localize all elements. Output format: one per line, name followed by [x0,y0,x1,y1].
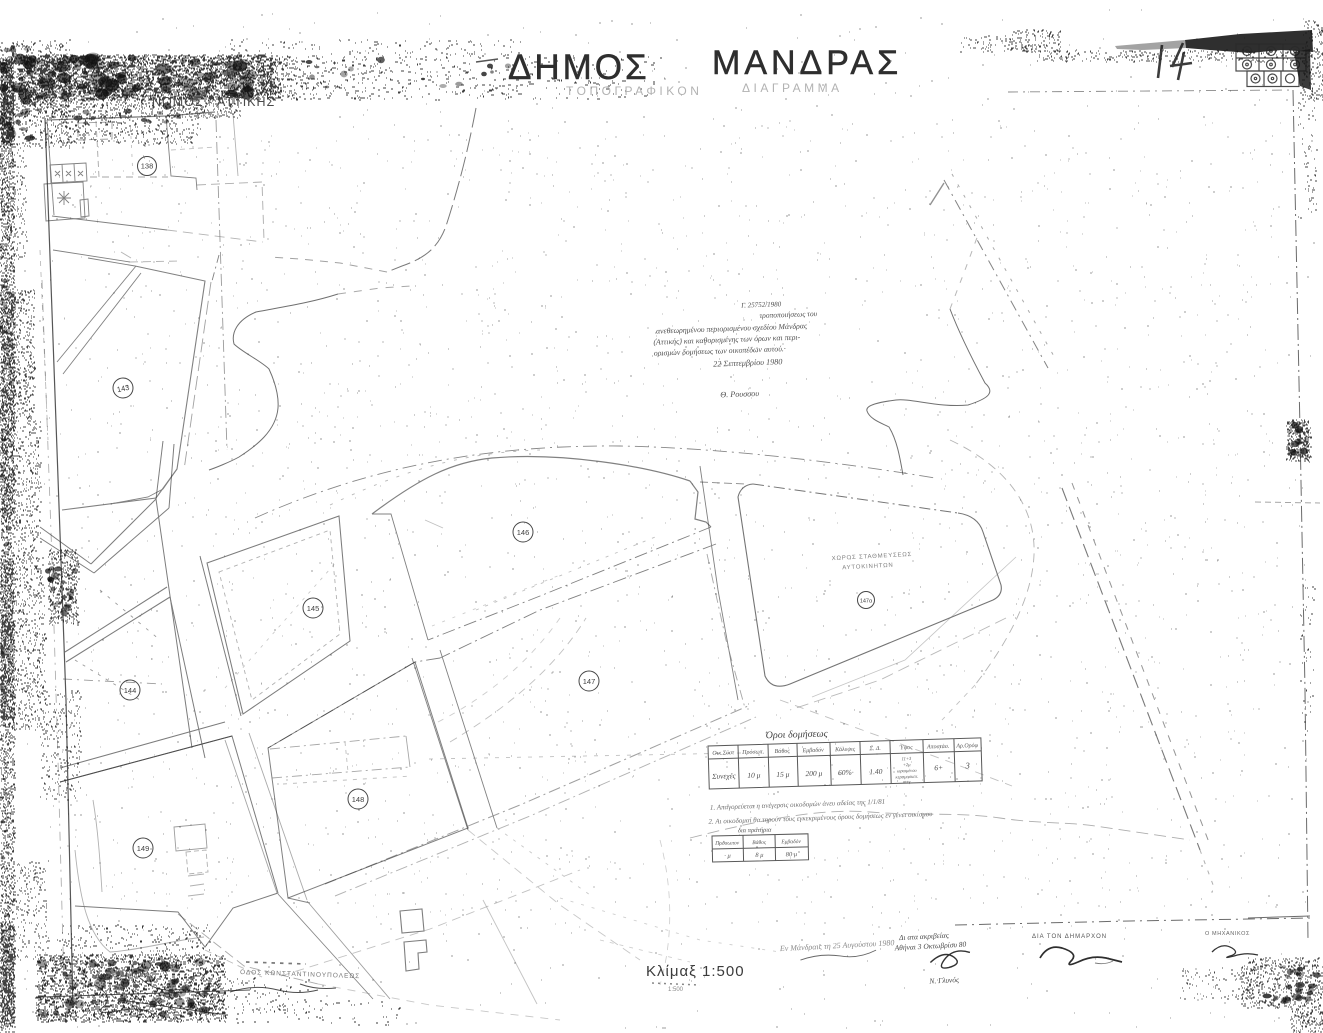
svg-text:Εμβαδόν: Εμβαδόν [780,839,801,845]
svg-text:147: 147 [583,677,596,686]
svg-text:Βάθος: Βάθος [775,749,791,755]
svg-text:ωρισμένου: ωρισμένου [897,768,917,774]
svg-text:145: 145 [307,604,320,613]
svg-text:146: 146 [517,528,530,537]
svg-text:Βάθος: Βάθος [752,840,767,846]
svg-text:Συνεχές: Συνεχές [711,771,737,781]
svg-text:6+: 6+ [934,763,943,772]
svg-text:Ν. Γλυνός: Ν. Γλυνός [928,975,960,986]
svg-text:Θ. Ρουσσου: Θ. Ρουσσου [720,389,759,399]
svg-text:Ο ΜΗΧΑΝΙΚΟΣ: Ο ΜΗΧΑΝΙΚΟΣ [1205,931,1250,937]
svg-text:Σ. Δ.: Σ. Δ. [868,746,881,752]
svg-text:ΣΚΑΛ: ΣΚΑΛ [196,113,222,120]
svg-text:ΤΟΠΟΓΡΑΦΙΚΟΝ: ΤΟΠΟΓΡΑΦΙΚΟΝ [566,84,702,98]
svg-text:Κάλυψις: Κάλυψις [834,747,856,754]
svg-text:147α: 147α [860,599,873,605]
svg-text:148: 148 [352,795,365,804]
svg-text:ΜΑΝΔΡΑΣ: ΜΑΝΔΡΑΣ [712,44,902,82]
svg-text:Όροι δομήσεως: Όροι δομήσεως [766,728,829,741]
svg-text:ΔΗΜΟΣ: ΔΗΜΟΣ [508,48,650,87]
svg-text:Οικ.Σύστ: Οικ.Σύστ [712,750,735,757]
svg-text:80·μ: 80·μ [786,851,798,858]
svg-text:15 μ: 15 μ [776,770,790,779]
svg-text:3: 3 [964,760,970,770]
svg-text:ΔΙΑΓΡΑΜΜΑ: ΔΙΑΓΡΑΜΜΑ [742,81,843,95]
svg-text:Εμβαδόν: Εμβαδόν [801,748,824,755]
svg-text:10 μ: 10 μ [747,770,761,779]
svg-text:· μ: · μ [724,853,731,860]
svg-text:δια πρατήρια: δια πρατήρια [738,827,772,835]
svg-text:11+3: 11+3 [902,756,912,761]
svg-text:στεγ.: στεγ. [903,779,912,784]
svg-text:1.40: 1.40 [869,767,883,776]
svg-text:+2μ: +2μ [903,762,912,767]
svg-text:Αρ.Ορόφ: Αρ.Ορόφ [955,743,978,750]
svg-text:Γ. 25752/1980: Γ. 25752/1980 [740,300,782,309]
svg-text:1:500: 1:500 [668,987,684,993]
svg-text:Πρόσωπον: Πρόσωπον [714,840,740,847]
svg-text:Ύψος: Ύψος [899,745,914,751]
svg-text:144: 144 [124,686,137,695]
svg-text:138: 138 [141,162,154,171]
svg-text:Κλίμαξ 1:500: Κλίμαξ 1:500 [646,963,745,980]
svg-text:149: 149 [137,844,150,853]
svg-text:ΝΟΜΟΣ · ΑΤΤΙΚΗΣ: ΝΟΜΟΣ · ΑΤΤΙΚΗΣ [152,95,275,109]
svg-text:ΔΙΑ ΤΟΝ ΔΗΜΑΡΧΟΝ: ΔΙΑ ΤΟΝ ΔΗΜΑΡΧΟΝ [1032,934,1107,940]
svg-text:60%·: 60%· [838,768,854,777]
svg-text:8 μ: 8 μ [755,852,764,859]
svg-text:Αποστάσ.: Αποστάσ. [926,744,950,751]
svg-text:Πρόσωπ.: Πρόσωπ. [741,749,764,756]
svg-text:200 μ: 200 μ [805,769,822,779]
